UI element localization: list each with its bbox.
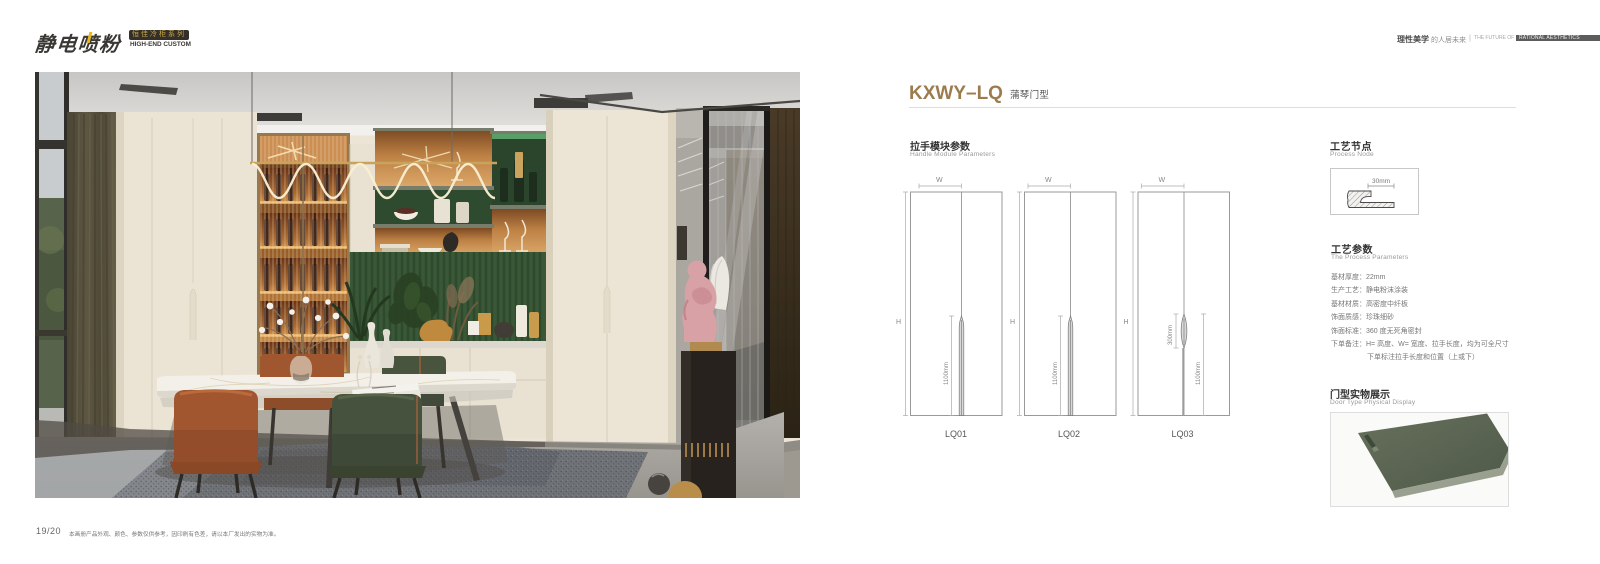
- svg-text:LQ01: LQ01: [945, 429, 967, 439]
- svg-text:LQ03: LQ03: [1172, 429, 1194, 439]
- svg-text:1100mm: 1100mm: [1196, 362, 1202, 385]
- svg-text:H: H: [1010, 319, 1015, 326]
- svg-text:H: H: [896, 319, 901, 326]
- svg-text:W: W: [1045, 177, 1052, 184]
- svg-text:H: H: [1124, 319, 1129, 326]
- svg-text:30mm: 30mm: [1372, 178, 1390, 185]
- svg-text:1100mm: 1100mm: [944, 362, 950, 385]
- svg-text:W: W: [1159, 177, 1166, 184]
- svg-text:W: W: [936, 177, 943, 184]
- svg-text:300mm: 300mm: [1168, 325, 1174, 345]
- svg-text:LQ02: LQ02: [1058, 429, 1080, 439]
- svg-text:1100mm: 1100mm: [1053, 362, 1059, 385]
